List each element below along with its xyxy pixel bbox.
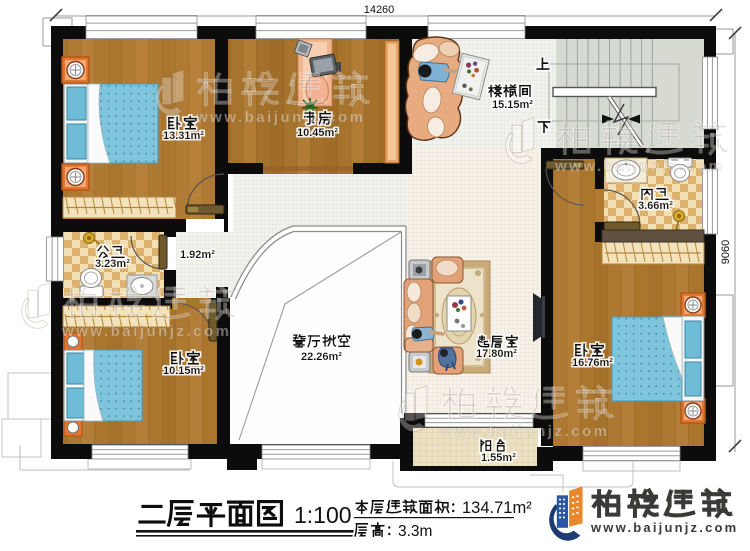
svg-text:www.baijunjz.com: www.baijunjz.com [195, 109, 365, 126]
svg-text:www.baijunjz.com: www.baijunjz.com [554, 158, 724, 175]
svg-text:17.80m²: 17.80m² [476, 348, 517, 360]
svg-text:3.66m²: 3.66m² [638, 200, 673, 212]
svg-text:14260: 14260 [364, 4, 395, 16]
svg-text:1.92m²: 1.92m² [180, 249, 215, 261]
svg-text:1:100: 1:100 [294, 502, 352, 528]
svg-text:www.baijunjz.com: www.baijunjz.com [590, 520, 738, 535]
svg-text:www.baijunjz.com: www.baijunjz.com [61, 323, 231, 340]
svg-text:15.15m²: 15.15m² [492, 99, 533, 111]
svg-text:9060: 9060 [720, 240, 732, 264]
svg-text:3.23m²: 3.23m² [95, 258, 130, 270]
svg-text:16.76m²: 16.76m² [572, 357, 613, 369]
svg-text:134.71m²: 134.71m² [462, 499, 532, 517]
svg-text:www.baijunjz.com: www.baijunjz.com [439, 423, 609, 440]
svg-text:10.15m²: 10.15m² [163, 365, 204, 377]
svg-text:10.45m²: 10.45m² [297, 127, 338, 139]
svg-text:3.3m: 3.3m [398, 523, 432, 540]
svg-text:13.31m²: 13.31m² [163, 130, 204, 142]
svg-text:1.55m²: 1.55m² [481, 452, 516, 464]
svg-text:22.26m²: 22.26m² [301, 351, 342, 363]
